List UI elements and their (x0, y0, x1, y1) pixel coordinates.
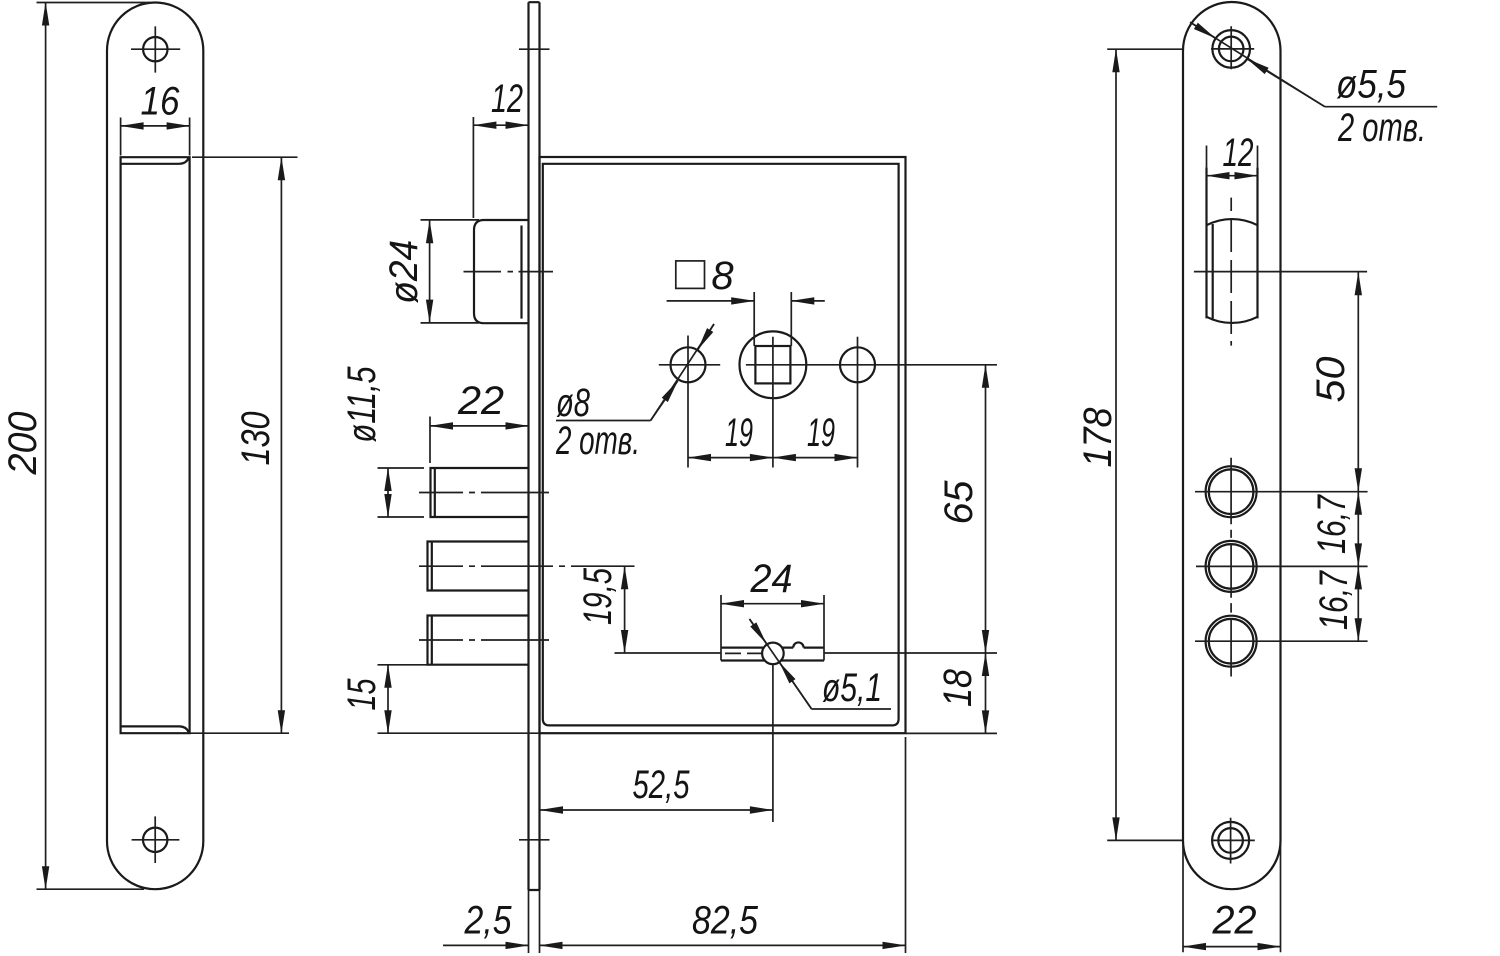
svg-text:ø5,1: ø5,1 (822, 666, 882, 710)
svg-text:22: 22 (1212, 899, 1257, 943)
svg-text:16,7: 16,7 (1312, 570, 1356, 630)
svg-text:15: 15 (340, 678, 384, 711)
svg-text:200: 200 (1, 412, 45, 476)
svg-text:22: 22 (457, 379, 504, 423)
svg-text:ø11,5: ø11,5 (340, 366, 384, 443)
svg-text:16,7: 16,7 (1310, 494, 1354, 554)
svg-text:65: 65 (937, 480, 981, 525)
svg-text:16: 16 (141, 80, 181, 124)
svg-text:52,5: 52,5 (633, 763, 691, 807)
svg-text:24: 24 (750, 557, 793, 601)
svg-text:82,5: 82,5 (692, 899, 759, 943)
svg-text:8: 8 (711, 254, 734, 298)
svg-text:12: 12 (491, 77, 523, 121)
svg-text:2,5: 2,5 (464, 899, 512, 943)
svg-text:18: 18 (936, 668, 980, 707)
svg-text:2 отв.: 2 отв. (1337, 106, 1426, 150)
svg-text:19,5: 19,5 (576, 567, 620, 625)
svg-text:2 отв.: 2 отв. (555, 419, 640, 463)
svg-text:178: 178 (1076, 407, 1120, 468)
svg-text:19: 19 (725, 411, 753, 455)
svg-text:ø24: ø24 (382, 240, 426, 304)
svg-text:130: 130 (234, 412, 278, 466)
svg-text:50: 50 (1309, 357, 1353, 403)
svg-text:19: 19 (807, 411, 835, 455)
svg-text:ø5,5: ø5,5 (1336, 63, 1407, 107)
svg-text:12: 12 (1223, 131, 1254, 175)
